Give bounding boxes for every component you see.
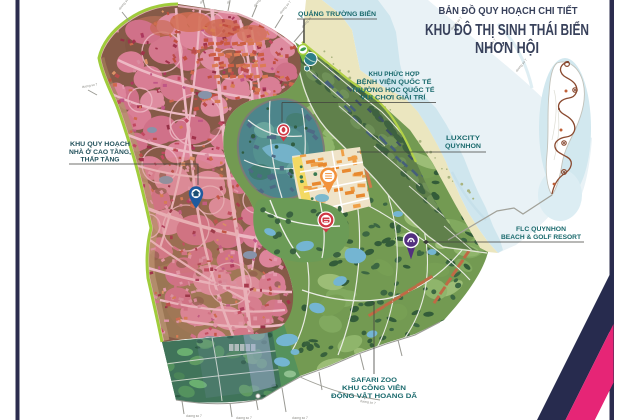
svg-text:ĐỘNG VẬT HOANG DÃ: ĐỘNG VẬT HOANG DÃ	[331, 391, 418, 400]
svg-text:LUXCITY: LUXCITY	[446, 135, 481, 143]
svg-text:KHU QUY HOẠCH: KHU QUY HOẠCH	[70, 141, 131, 149]
svg-text:BỆNH VIỆN QUỐC TẾ: BỆNH VIỆN QUỐC TẾ	[357, 77, 432, 86]
svg-text:NHÀ Ở CAO TẦNG,: NHÀ Ở CAO TẦNG,	[69, 149, 131, 157]
svg-text:VUI CHƠI GIẢI TRÍ: VUI CHƠI GIẢI TRÍ	[361, 93, 426, 102]
svg-text:KHU CÔNG VIÊN: KHU CÔNG VIÊN	[342, 383, 407, 392]
svg-text:THẤP TẦNG: THẤP TẦNG	[81, 156, 120, 164]
svg-text:SAFARI ZOO: SAFARI ZOO	[351, 377, 397, 385]
svg-text:QUẢNG TRƯỜNG BIỂN: QUẢNG TRƯỜNG BIỂN	[298, 9, 377, 18]
svg-text:TRƯỜNG HỌC QUỐC TẾ: TRƯỜNG HỌC QUỐC TẾ	[352, 85, 435, 94]
svg-text:duong so 7: duong so 7	[236, 416, 252, 420]
svg-text:KHU ĐÔ THỊ SINH THÁI BIỂN: KHU ĐÔ THỊ SINH THÁI BIỂN	[425, 19, 589, 39]
svg-text:KHU PHỨC HỢP: KHU PHỨC HỢP	[369, 71, 420, 79]
svg-text:BEACH & GOLF RESORT: BEACH & GOLF RESORT	[501, 234, 581, 242]
svg-text:duong so 7: duong so 7	[186, 414, 202, 418]
svg-text:BẢN ĐỒ QUY HOẠCH CHI TIẾT: BẢN ĐỒ QUY HOẠCH CHI TIẾT	[439, 4, 578, 16]
svg-text:NHƠN HỘI: NHƠN HỘI	[475, 37, 539, 57]
svg-text:QUYNHON: QUYNHON	[445, 143, 482, 151]
svg-text:duong so 7: duong so 7	[292, 416, 308, 420]
svg-text:FLC QUYNHON: FLC QUYNHON	[516, 226, 567, 234]
